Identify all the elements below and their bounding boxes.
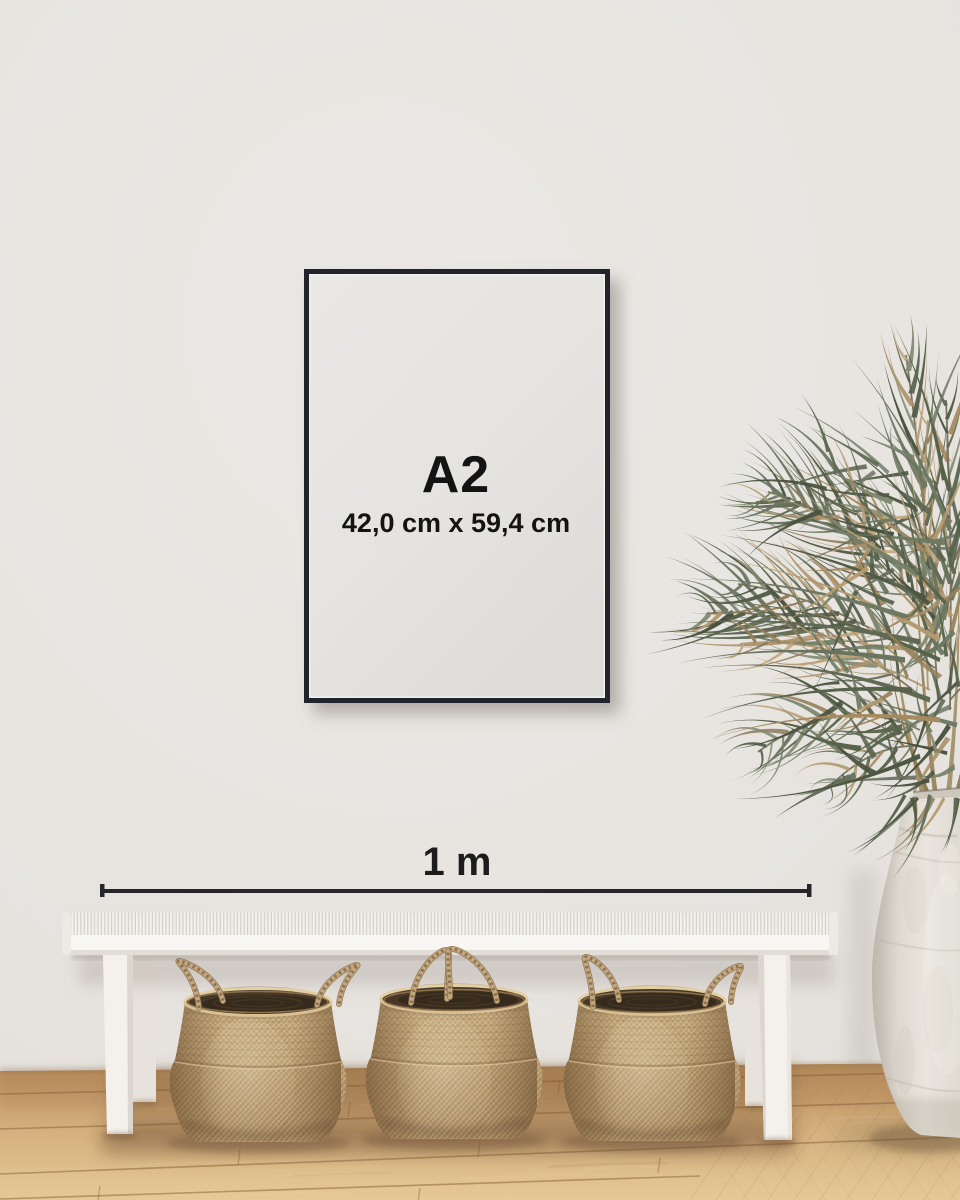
svg-text:42,0 cm x 59,4 cm: 42,0 cm x 59,4 cm [342,508,570,538]
svg-text:A2: A2 [422,446,490,504]
svg-text:1 m: 1 m [423,840,492,884]
